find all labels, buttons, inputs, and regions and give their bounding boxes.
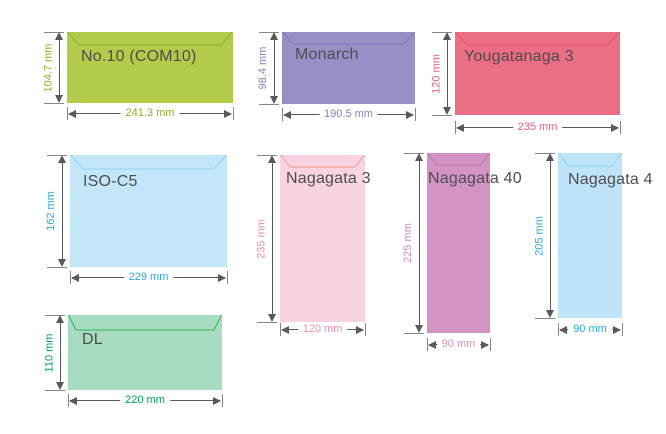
height-extension-tick bbox=[404, 333, 424, 334]
envelope-name: Nagagata 4 bbox=[568, 171, 653, 189]
left-arrowhead-icon bbox=[281, 326, 289, 334]
height-dimension-label: 110 mm bbox=[42, 315, 56, 390]
envelope-name: DL bbox=[82, 331, 103, 349]
up-arrowhead-icon bbox=[415, 153, 423, 161]
width-dimension-label: 120 mm bbox=[298, 322, 348, 336]
height-dimension-label: 205 mm bbox=[532, 153, 546, 318]
right-arrowhead-icon bbox=[406, 111, 414, 119]
up-arrowhead-icon bbox=[55, 32, 63, 40]
envelope-flap-icon bbox=[280, 155, 365, 169]
height-dimension-line bbox=[419, 160, 420, 326]
envelope-name: Yougatanaga 3 bbox=[464, 48, 574, 66]
right-arrowhead-icon bbox=[224, 110, 232, 118]
up-arrowhead-icon bbox=[546, 153, 554, 161]
left-arrowhead-icon bbox=[559, 326, 567, 334]
down-arrowhead-icon bbox=[415, 325, 423, 333]
width-dimension-label: 235 mm bbox=[513, 120, 563, 134]
envelope-shape bbox=[70, 155, 227, 267]
left-arrowhead-icon bbox=[428, 341, 436, 349]
height-extension-tick bbox=[259, 104, 279, 105]
down-arrowhead-icon bbox=[268, 314, 276, 322]
height-dimension-line bbox=[59, 39, 60, 96]
width-extension-tick bbox=[222, 394, 223, 407]
envelope-name: Nagagata 3 bbox=[286, 170, 371, 188]
width-extension-tick bbox=[490, 338, 491, 351]
right-arrowhead-icon bbox=[481, 341, 489, 349]
width-dimension-label: 90 mm bbox=[437, 337, 481, 351]
up-arrowhead-icon bbox=[268, 155, 276, 163]
envelope-size-figure: No.10 (COM10)104.7 mm241.3 mmMonarch98.4… bbox=[0, 0, 666, 434]
width-dimension-label: 220 mm bbox=[120, 393, 170, 407]
up-arrowhead-icon bbox=[58, 155, 66, 163]
left-arrowhead-icon bbox=[68, 110, 76, 118]
envelope-flap-icon bbox=[68, 315, 222, 332]
envelope-name: Nagagata 40 bbox=[428, 170, 522, 188]
right-arrowhead-icon bbox=[213, 397, 221, 405]
right-arrowhead-icon bbox=[611, 124, 619, 132]
width-dimension-label: 190.5 mm bbox=[319, 107, 378, 121]
down-arrowhead-icon bbox=[270, 96, 278, 104]
down-arrowhead-icon bbox=[443, 107, 451, 115]
down-arrowhead-icon bbox=[55, 95, 63, 103]
width-dimension-label: 229 mm bbox=[124, 270, 174, 284]
left-arrowhead-icon bbox=[71, 274, 79, 282]
width-dimension-label: 90 mm bbox=[568, 322, 612, 336]
left-arrowhead-icon bbox=[456, 124, 464, 132]
height-dimension-line bbox=[60, 322, 61, 383]
height-dimension-line bbox=[550, 160, 551, 311]
left-arrowhead-icon bbox=[283, 111, 291, 119]
width-extension-tick bbox=[227, 271, 228, 284]
height-dimension-label: 235 mm bbox=[254, 155, 268, 322]
envelope-name: No.10 (COM10) bbox=[81, 48, 197, 66]
width-dimension-label: 241.3 mm bbox=[121, 106, 180, 120]
height-dimension-label: 104.7 mm bbox=[41, 32, 55, 103]
width-extension-tick bbox=[620, 121, 621, 134]
up-arrowhead-icon bbox=[270, 32, 278, 40]
envelope-flap-icon bbox=[67, 32, 233, 47]
right-arrowhead-icon bbox=[218, 274, 226, 282]
envelope-flap-icon bbox=[427, 153, 490, 167]
down-arrowhead-icon bbox=[56, 382, 64, 390]
envelope-flap-icon bbox=[70, 155, 227, 171]
height-extension-tick bbox=[47, 267, 67, 268]
envelope-flap-icon bbox=[558, 153, 622, 168]
height-dimension-label: 225 mm bbox=[401, 153, 415, 333]
width-extension-tick bbox=[365, 323, 366, 336]
down-arrowhead-icon bbox=[58, 259, 66, 267]
right-arrowhead-icon bbox=[613, 326, 621, 334]
left-arrowhead-icon bbox=[69, 397, 77, 405]
height-dimension-line bbox=[274, 39, 275, 97]
up-arrowhead-icon bbox=[56, 315, 64, 323]
up-arrowhead-icon bbox=[443, 32, 451, 40]
height-dimension-line bbox=[447, 39, 448, 108]
height-dimension-line bbox=[62, 162, 63, 260]
width-extension-tick bbox=[622, 323, 623, 336]
envelope-flap-icon bbox=[455, 32, 620, 47]
width-extension-tick bbox=[233, 107, 234, 120]
height-dimension-label: 162 mm bbox=[44, 155, 58, 267]
height-dimension-line bbox=[272, 162, 273, 315]
height-dimension-label: 120 mm bbox=[429, 32, 443, 115]
width-extension-tick bbox=[415, 108, 416, 121]
down-arrowhead-icon bbox=[546, 310, 554, 318]
envelope-flap-icon bbox=[282, 32, 415, 46]
envelope-name: Monarch bbox=[295, 46, 359, 64]
envelope-name: ISO-C5 bbox=[83, 173, 138, 191]
right-arrowhead-icon bbox=[356, 326, 364, 334]
height-dimension-label: 98.4 mm bbox=[256, 32, 270, 104]
